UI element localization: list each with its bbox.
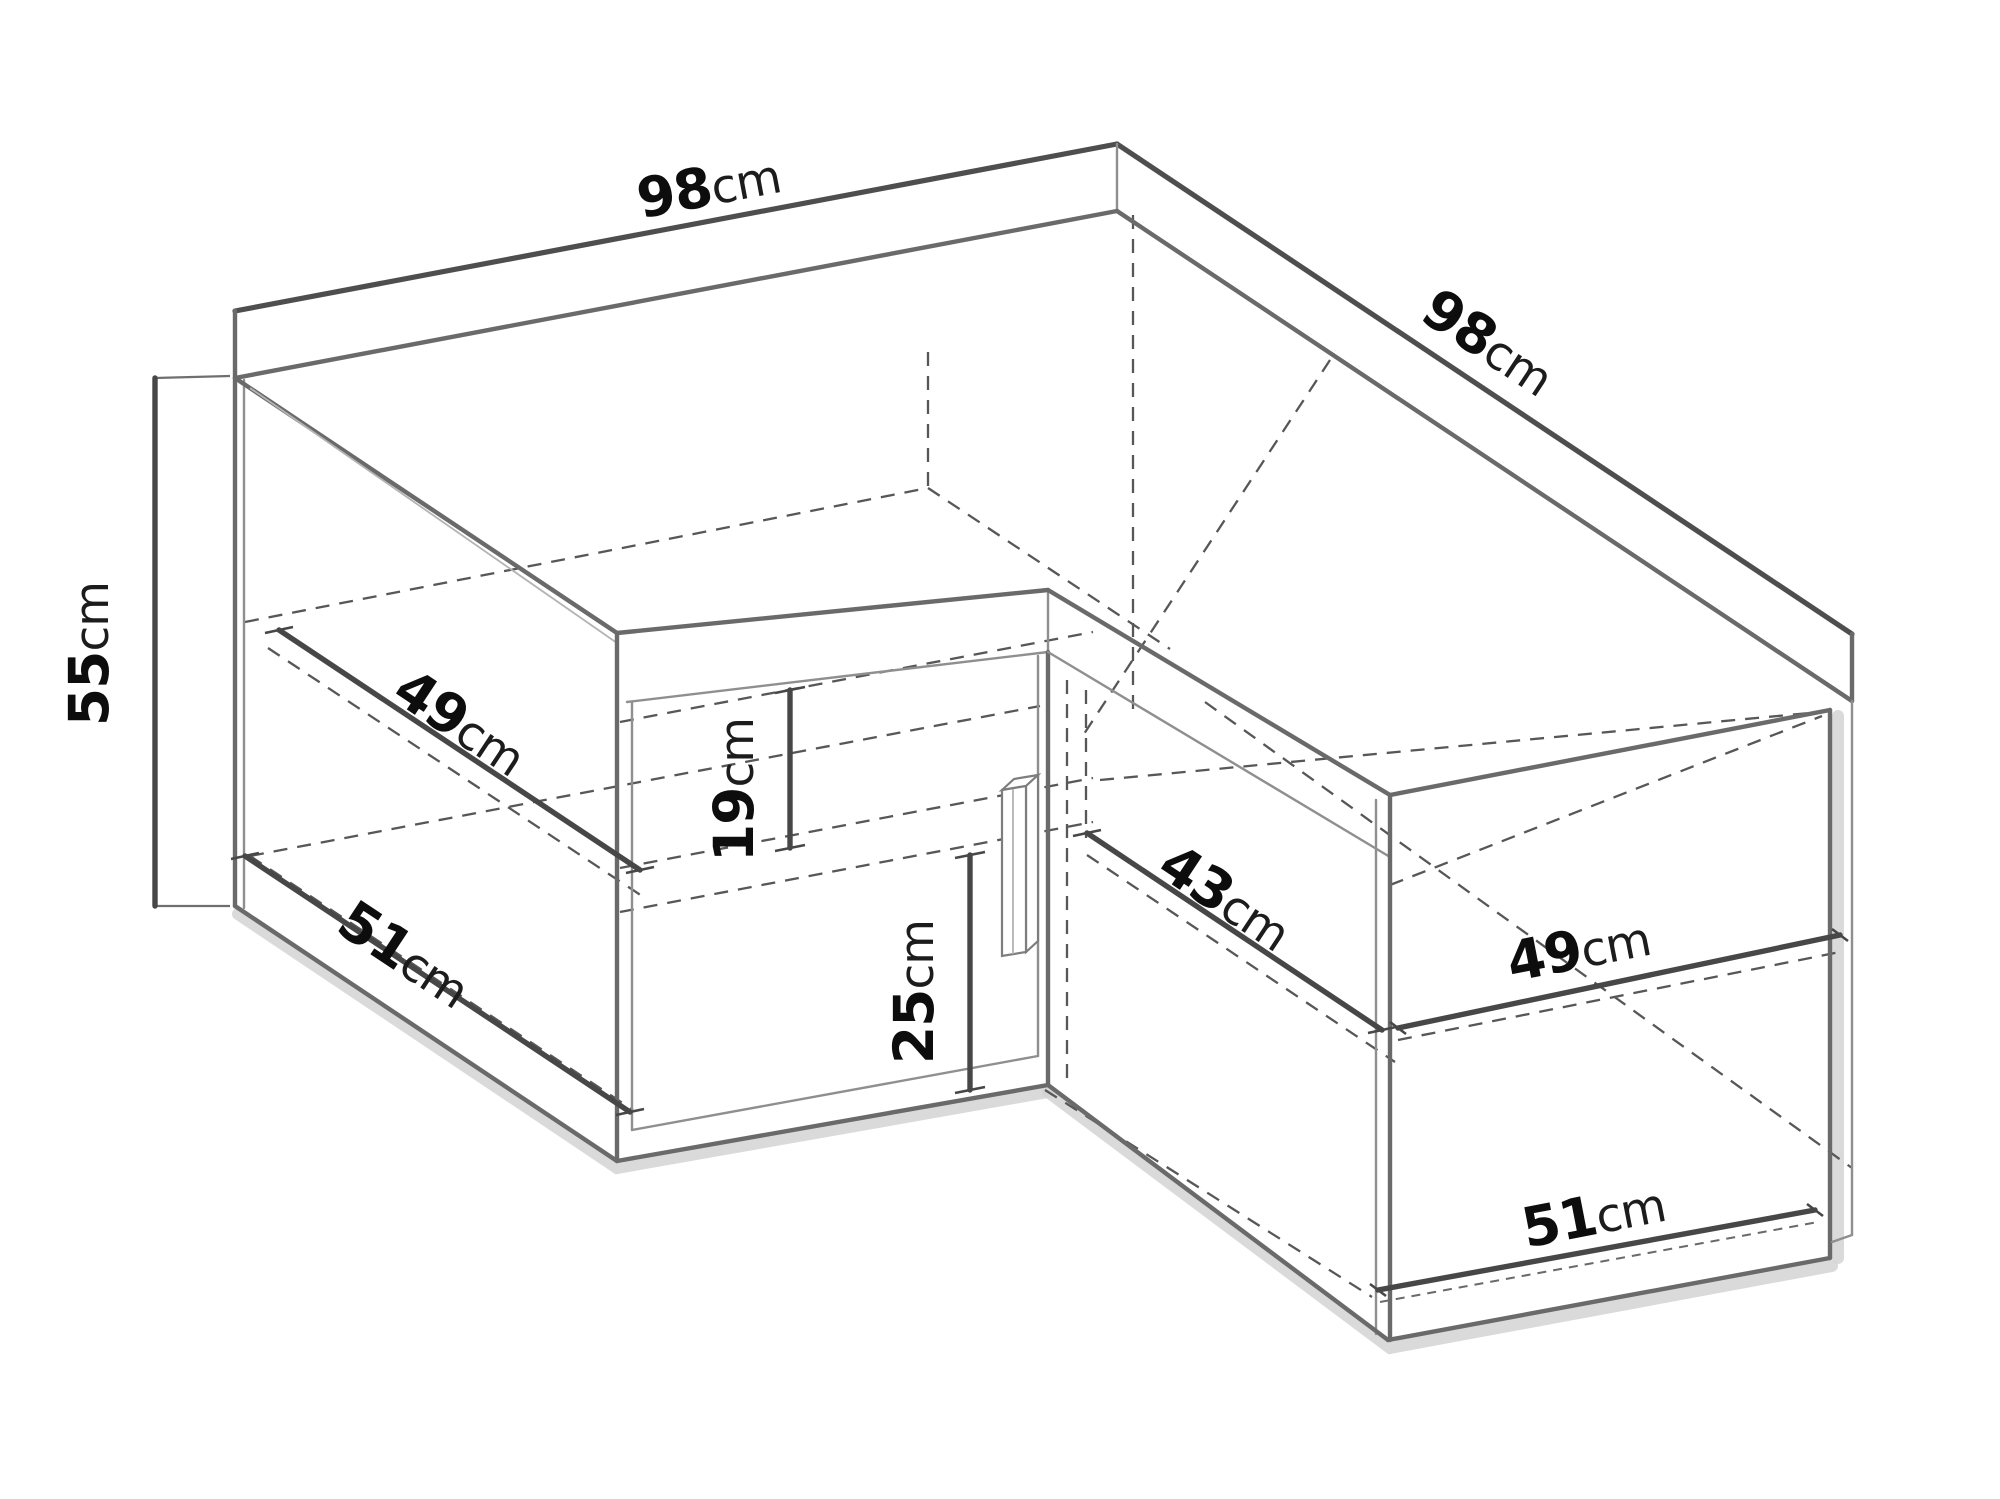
back-strip-top-edge-right — [1117, 144, 1852, 634]
shadow-right — [1048, 1092, 1832, 1348]
door-handle — [1002, 775, 1038, 956]
handle-front-face — [1002, 786, 1026, 956]
right-front-rail-edge — [1048, 652, 1390, 857]
left-front-rail-edge — [627, 652, 1048, 702]
left-front-bottom-edge — [617, 1085, 1048, 1161]
hidden-right-top-edge-1 — [1100, 712, 1820, 780]
right-front-top-edge — [1048, 590, 1390, 795]
label-49-shelf-left: 49cm — [383, 656, 539, 789]
left-end-top-inner — [250, 388, 617, 643]
handle-side-face — [1026, 775, 1038, 952]
label-19-opening: 19cm — [702, 718, 766, 862]
door-bottom-edge — [632, 1056, 1038, 1130]
label-98-back-left: 98cm — [632, 142, 786, 232]
left-end-top-edge — [235, 378, 617, 633]
hidden-shelf-back-edge-left — [250, 706, 1040, 856]
hidden-right-top-edge-2 — [1390, 716, 1822, 885]
door — [632, 656, 1038, 1130]
back-strip-bottom-edge-left — [235, 211, 1117, 378]
dimension-labels: 98cm 98cm 55cm 49cm 51cm 19cm 25cm 43cm … — [57, 142, 1670, 1261]
back-strip-bottom-edge-right — [1117, 211, 1852, 701]
furniture-dimension-diagram: 98cm 98cm 55cm 49cm 51cm 19cm 25cm 43cm … — [0, 0, 2000, 1499]
dim-55-extension-top — [155, 376, 230, 378]
hidden-interior-top-back-edge — [245, 488, 928, 622]
label-43-inner-right: 43cm — [1148, 831, 1304, 964]
isometric-corner-cabinet-drawing: 98cm 98cm 55cm 49cm 51cm 19cm 25cm 43cm … — [0, 0, 2000, 1499]
label-55-height: 55cm — [57, 582, 121, 726]
label-25-opening: 25cm — [882, 920, 946, 1064]
hidden-top-panel-underside-edge — [620, 632, 1093, 722]
label-51-bottom-right: 51cm — [1517, 1170, 1671, 1260]
right-end-top-edge — [1390, 710, 1830, 795]
left-front-top-edge — [617, 590, 1048, 633]
right-end-bottom-edge — [1388, 1258, 1830, 1340]
right-front-bottom-edge — [1048, 1085, 1388, 1340]
label-51-bottom-left: 51cm — [327, 888, 483, 1021]
